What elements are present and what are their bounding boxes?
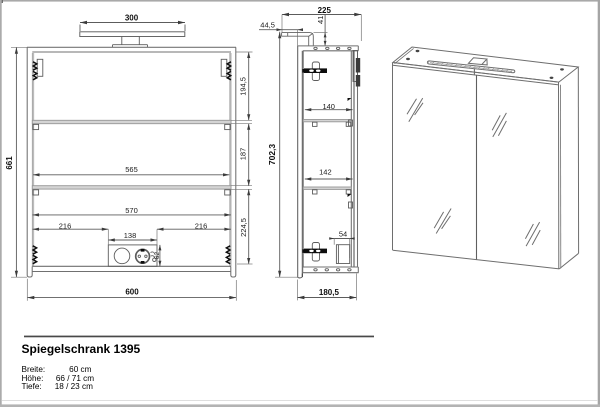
svg-text:570: 570 — [125, 206, 138, 215]
svg-text:300: 300 — [125, 14, 139, 23]
svg-text:142: 142 — [319, 168, 332, 177]
svg-text:600: 600 — [125, 287, 139, 296]
svg-text:225: 225 — [318, 6, 332, 15]
svg-text:661: 661 — [5, 156, 14, 170]
svg-text:54: 54 — [339, 230, 347, 239]
svg-text:187: 187 — [239, 148, 248, 161]
svg-text:565: 565 — [125, 165, 138, 174]
svg-text:702,3: 702,3 — [267, 144, 277, 166]
svg-text:138: 138 — [124, 231, 137, 240]
svg-text:41: 41 — [316, 16, 325, 24]
svg-text:180,5: 180,5 — [319, 288, 340, 297]
svg-text:194,5: 194,5 — [239, 77, 248, 96]
svg-text:224,5: 224,5 — [239, 218, 248, 237]
svg-text:44,5: 44,5 — [260, 21, 275, 30]
